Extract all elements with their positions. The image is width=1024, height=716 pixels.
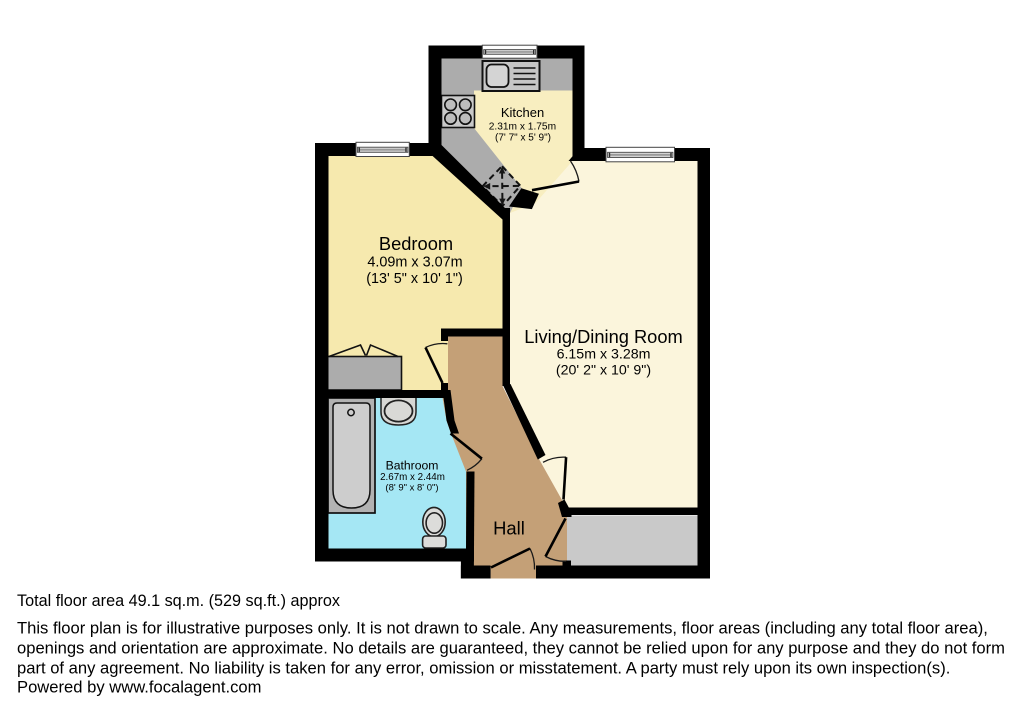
svg-text:(7' 7" x 5' 9"): (7' 7" x 5' 9") [495,133,551,144]
svg-text:6.15m x 3.28m: 6.15m x 3.28m [557,347,651,363]
svg-text:(13' 5" x 10' 1"): (13' 5" x 10' 1") [366,271,463,287]
svg-text:2.67m x 2.44m: 2.67m x 2.44m [380,472,445,483]
svg-text:Kitchen: Kitchen [501,105,544,120]
svg-text:4.09m x 3.07m: 4.09m x 3.07m [367,254,462,270]
svg-text:Powered by www.focalagent.com: Powered by www.focalagent.com [17,678,261,697]
svg-text:Bathroom: Bathroom [386,459,439,473]
svg-text:This floor plan is for illustr: This floor plan is for illustrative purp… [17,619,988,638]
svg-text:part of any agreement. No liab: part of any agreement. No liability is t… [17,659,950,678]
svg-text:Living/Dining Room: Living/Dining Room [524,326,683,347]
svg-text:2.31m x 1.75m: 2.31m x 1.75m [489,122,556,133]
svg-text:Bedroom: Bedroom [379,233,453,254]
svg-text:openings and orientation are a: openings and orientation are approximate… [17,639,1005,658]
svg-text:Hall: Hall [493,518,525,539]
svg-text:Total floor area 49.1 sq.m. (5: Total floor area 49.1 sq.m. (529 sq.ft.)… [17,592,340,610]
svg-text:(20' 2" x 10' 9"): (20' 2" x 10' 9") [556,362,651,378]
svg-text:(8' 9" x 8' 0"): (8' 9" x 8' 0") [385,483,438,494]
